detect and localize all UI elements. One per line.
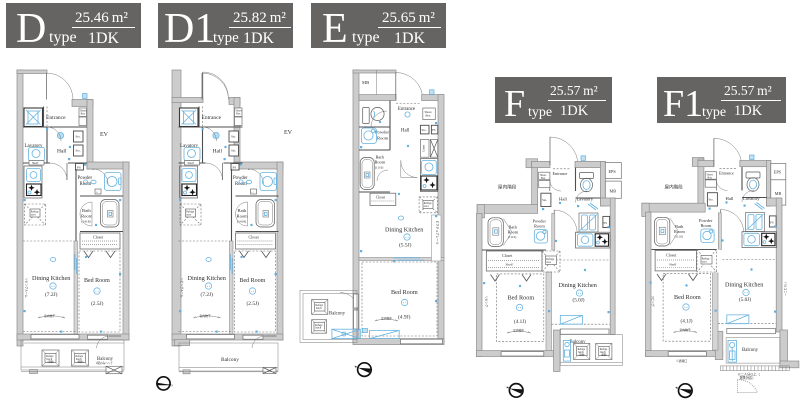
svg-text:25.57 m²: 25.57 m² [550,83,598,98]
svg-text:Box: Box [81,113,86,116]
svg-text:Shelf: Shelf [669,262,677,266]
svg-text:リビングルーム: リビングルーム [25,278,29,298]
svg-text:Sto.: Sto. [76,135,81,139]
svg-text:(1116): (1116) [375,165,383,169]
svg-text:MB: MB [362,80,369,85]
svg-text:(避難): (避難) [77,359,84,363]
svg-text:Linen: Linen [423,144,426,151]
svg-text:EPS: EPS [609,169,617,174]
svg-text:EV: EV [100,132,109,138]
svg-text:Lavatory: Lavatory [577,197,594,202]
svg-text:Balcony: Balcony [742,348,759,353]
svg-text:type: type [352,29,380,46]
svg-text:Closet: Closet [502,253,513,258]
svg-text:1DK: 1DK [243,30,275,47]
svg-text:25.65 m²: 25.65 m² [382,10,435,26]
svg-text:2階のみハッチ: 2階のみハッチ [96,361,113,365]
svg-text:MB: MB [610,188,617,193]
svg-text:rator: rator [424,205,429,208]
svg-text:type: type [528,105,552,120]
svg-text:Closet: Closet [93,235,104,240]
svg-text:Box: Box [541,177,546,180]
svg-text:Room: Room [80,182,92,187]
svg-text:Sto.: Sto. [422,128,427,132]
svg-text:D1: D1 [164,6,215,52]
svg-text:Entrance: Entrance [553,171,568,176]
svg-text:Balcony: Balcony [221,357,239,363]
svg-text:hatch: hatch [316,307,322,310]
svg-text:D: D [16,6,46,52]
svg-text:PS: PS [77,166,81,170]
svg-text:Bed Room: Bed Room [391,289,418,296]
svg-text:Shelf: Shelf [506,263,514,267]
svg-text:F1: F1 [663,83,703,125]
svg-text:PS: PS [604,221,608,225]
svg-text:室内物干: 室内物干 [381,317,392,321]
svg-text:Room: Room [377,136,389,141]
svg-text:Bath: Bath [82,208,91,213]
svg-text:(1116): (1116) [508,235,516,239]
svg-text:Entrance: Entrance [46,115,66,121]
svg-text:※通用口: ※通用口 [676,359,687,363]
svg-text:リビング: リビング [485,296,489,307]
svg-text:Sto.: Sto. [542,198,547,202]
svg-text:Hall: Hall [559,197,568,202]
svg-text:Box: Box [426,114,432,118]
svg-text:Dining Kitchen: Dining Kitchen [32,275,70,282]
svg-text:Closet: Closet [666,253,677,258]
svg-text:MB: MB [775,191,782,196]
svg-text:rator: rator [702,260,707,263]
svg-text:E: E [322,6,348,52]
svg-text:1DK: 1DK [734,103,763,119]
svg-text:Closet: Closet [376,196,385,200]
svg-text:type: type [702,105,726,120]
svg-text:Room: Room [375,160,386,165]
svg-text:type: type [213,30,239,46]
svg-text:25.82 m²: 25.82 m² [233,10,286,26]
svg-text:Lavatory: Lavatory [25,144,44,149]
svg-text:25.46 m²: 25.46 m² [75,10,128,26]
svg-text:Powder: Powder [375,130,390,135]
svg-text:室内物干: 室内物干 [44,314,55,318]
svg-text:F: F [504,83,525,125]
svg-text:室内物干: 室内物干 [513,329,524,333]
svg-text:(4.9J): (4.9J) [398,314,411,321]
svg-text:1DK: 1DK [560,103,589,119]
svg-text:ピクチュアレール: ピクチュアレール [436,221,441,245]
svg-text:(4.1J): (4.1J) [514,318,526,325]
svg-text:1DK: 1DK [88,30,120,47]
svg-text:(5.0J): (5.0J) [573,297,585,304]
svg-text:Room: Room [508,230,519,235]
svg-text:Room: Room [81,214,93,219]
svg-text:(7.2J): (7.2J) [45,291,58,298]
svg-text:屋内階段: 屋内階段 [665,184,684,191]
svg-text:Dining Kitchen: Dining Kitchen [559,282,597,289]
svg-text:屋内階段: 屋内階段 [498,184,517,191]
svg-text:Balcony: Balcony [329,312,346,317]
svg-text:Dining Kitchen: Dining Kitchen [385,227,423,234]
svg-text:hatch: hatch [316,327,322,330]
svg-text:Shelf: Shelf [32,161,38,165]
svg-text:type: type [49,29,77,46]
svg-text:EPS: EPS [774,170,782,175]
svg-text:Bed Room: Bed Room [84,278,110,284]
svg-text:rator: rator [31,214,36,217]
svg-text:(5.5J): (5.5J) [399,242,412,249]
svg-text:バルコニー: バルコニー [784,282,788,296]
svg-text:Sto.: Sto. [76,149,81,153]
svg-text:□: □ [96,191,98,194]
svg-text:Bed Room: Bed Room [508,295,535,302]
svg-text:1DK: 1DK [394,30,426,47]
svg-text:EV: EV [284,130,293,136]
svg-text:PS: PS [432,128,436,132]
svg-text:(避難): (避難) [48,359,55,363]
svg-text:25.57 m²: 25.57 m² [724,83,772,98]
svg-text:(2.5J): (2.5J) [91,300,104,307]
svg-text:Room: Room [534,224,545,229]
svg-text:Hall: Hall [57,149,67,155]
svg-text:提携対応）: 提携対応） [740,375,756,380]
svg-text:Entrance: Entrance [398,107,415,112]
svg-text:Hall: Hall [401,129,410,134]
svg-text:rator: rator [546,261,551,264]
